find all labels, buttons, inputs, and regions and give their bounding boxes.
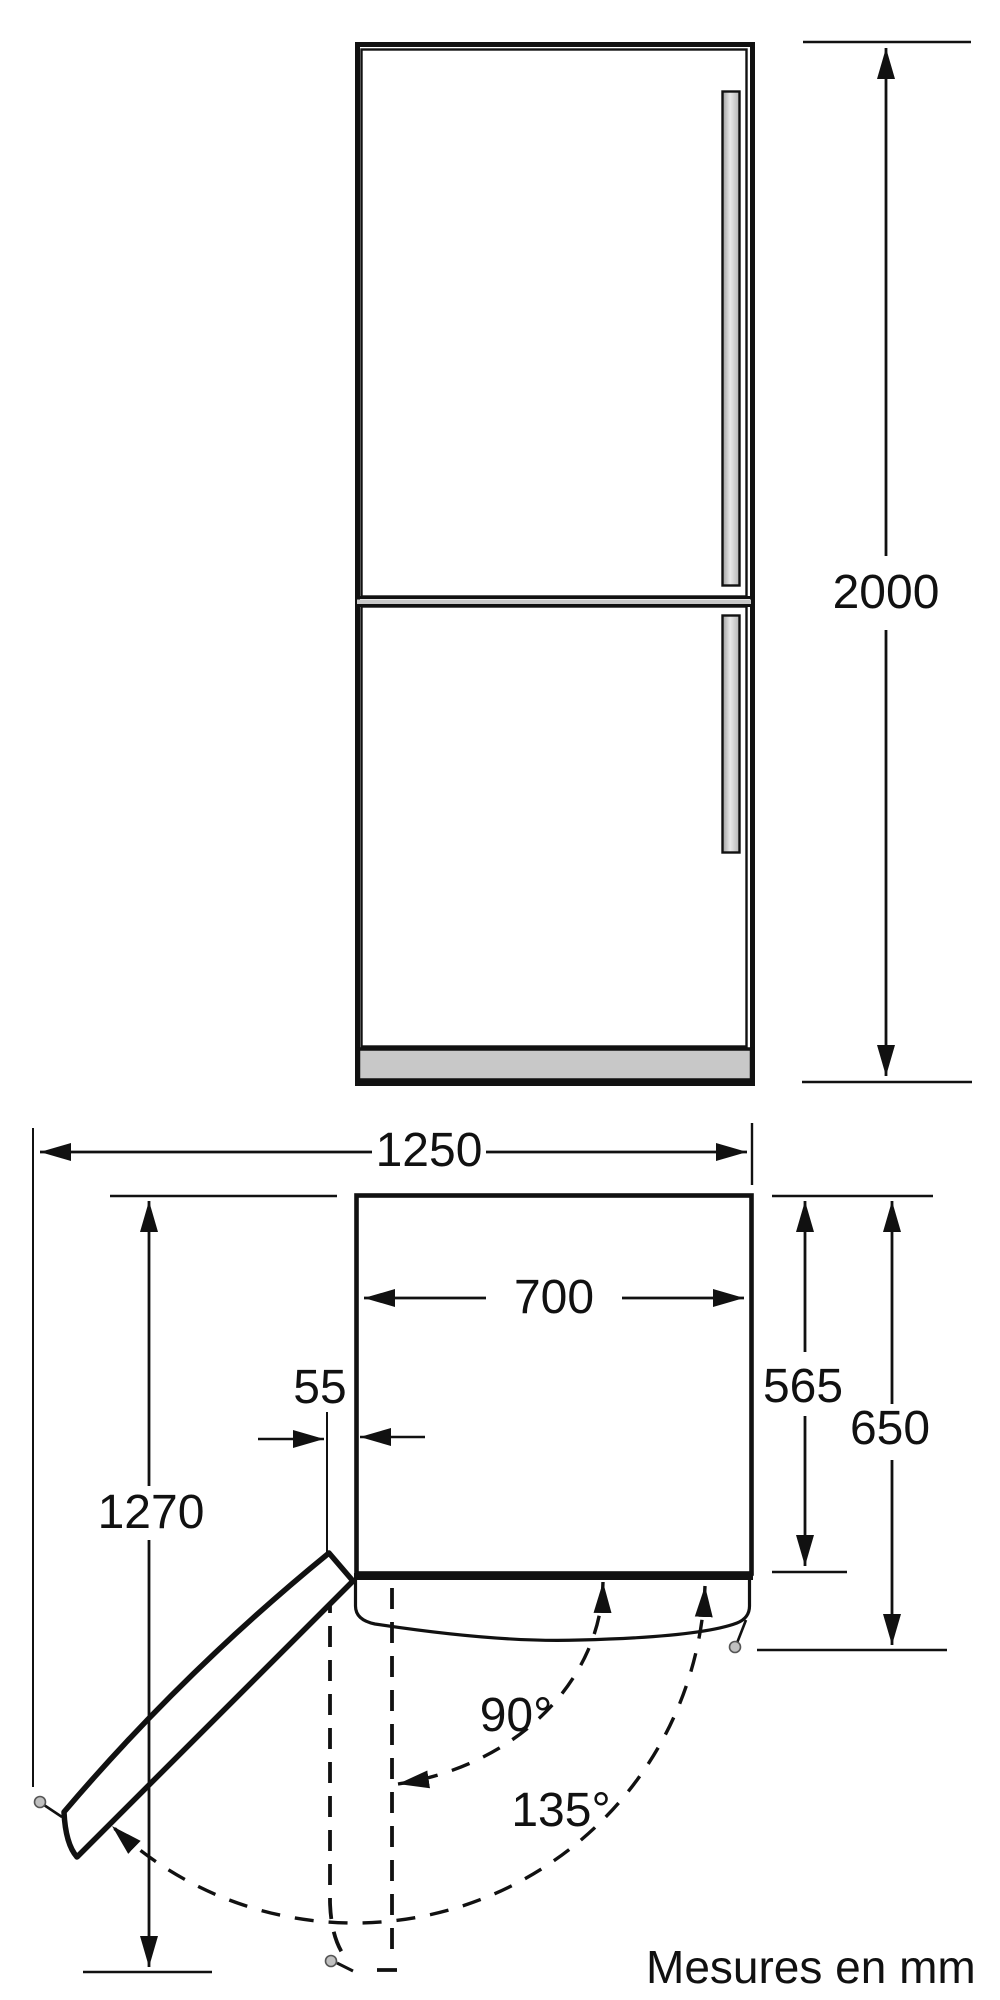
door-open-handle-pin	[35, 1797, 46, 1808]
door-open-handle-stem	[44, 1805, 62, 1817]
cabinet-top-outline	[357, 1196, 752, 1574]
fridge-lower-door	[362, 607, 747, 1047]
angle-label-90: 90°	[480, 1689, 553, 1742]
door-open-135	[64, 1553, 353, 1857]
dim-label-cabinet-width: 700	[514, 1271, 594, 1324]
door-divider-strip	[357, 600, 751, 605]
door-closed-handle-pin	[730, 1642, 741, 1653]
fridge-plinth	[359, 1049, 752, 1080]
door-90-outer-face-dashed	[330, 1592, 345, 1957]
dimension-cabinet-width: 700	[364, 1271, 744, 1324]
dim-label-door-clearance: 55	[293, 1361, 346, 1414]
door-open-90-position	[326, 1588, 398, 1971]
dimension-total-width: 1250	[33, 1123, 752, 1787]
fridge-upper-door	[362, 50, 747, 597]
door-90-handle-pin	[326, 1956, 337, 1967]
dimension-depths: 565 650	[757, 1196, 947, 1650]
fridge-body-outline	[358, 45, 753, 1084]
door-90-handle-hook	[337, 1963, 353, 1971]
dim-label-total-depth: 650	[850, 1402, 930, 1455]
dim-label-cabinet-depth: 565	[763, 1360, 843, 1413]
dim-label-total-width: 1250	[376, 1124, 483, 1177]
top-view	[35, 1196, 754, 1972]
lower-door-handle	[723, 616, 740, 853]
swing-arc-90	[398, 1582, 603, 1784]
dimension-diagram-page: 2000 1250	[0, 0, 1000, 2000]
upper-door-handle	[723, 92, 740, 586]
dim-label-swing-reach: 1270	[98, 1486, 205, 1539]
dimension-total-height: 2000	[802, 42, 972, 1082]
dim-label-total-height: 2000	[833, 566, 940, 619]
door-closed-front-face	[356, 1580, 750, 1640]
dimension-diagram: 2000 1250	[0, 0, 1000, 2000]
angle-label-135: 135°	[511, 1784, 610, 1837]
front-view	[357, 45, 753, 1084]
swing-arc-135	[112, 1586, 705, 1923]
dimension-door-clearance: 55	[258, 1361, 425, 1556]
units-note: Mesures en mm	[646, 1941, 976, 1993]
